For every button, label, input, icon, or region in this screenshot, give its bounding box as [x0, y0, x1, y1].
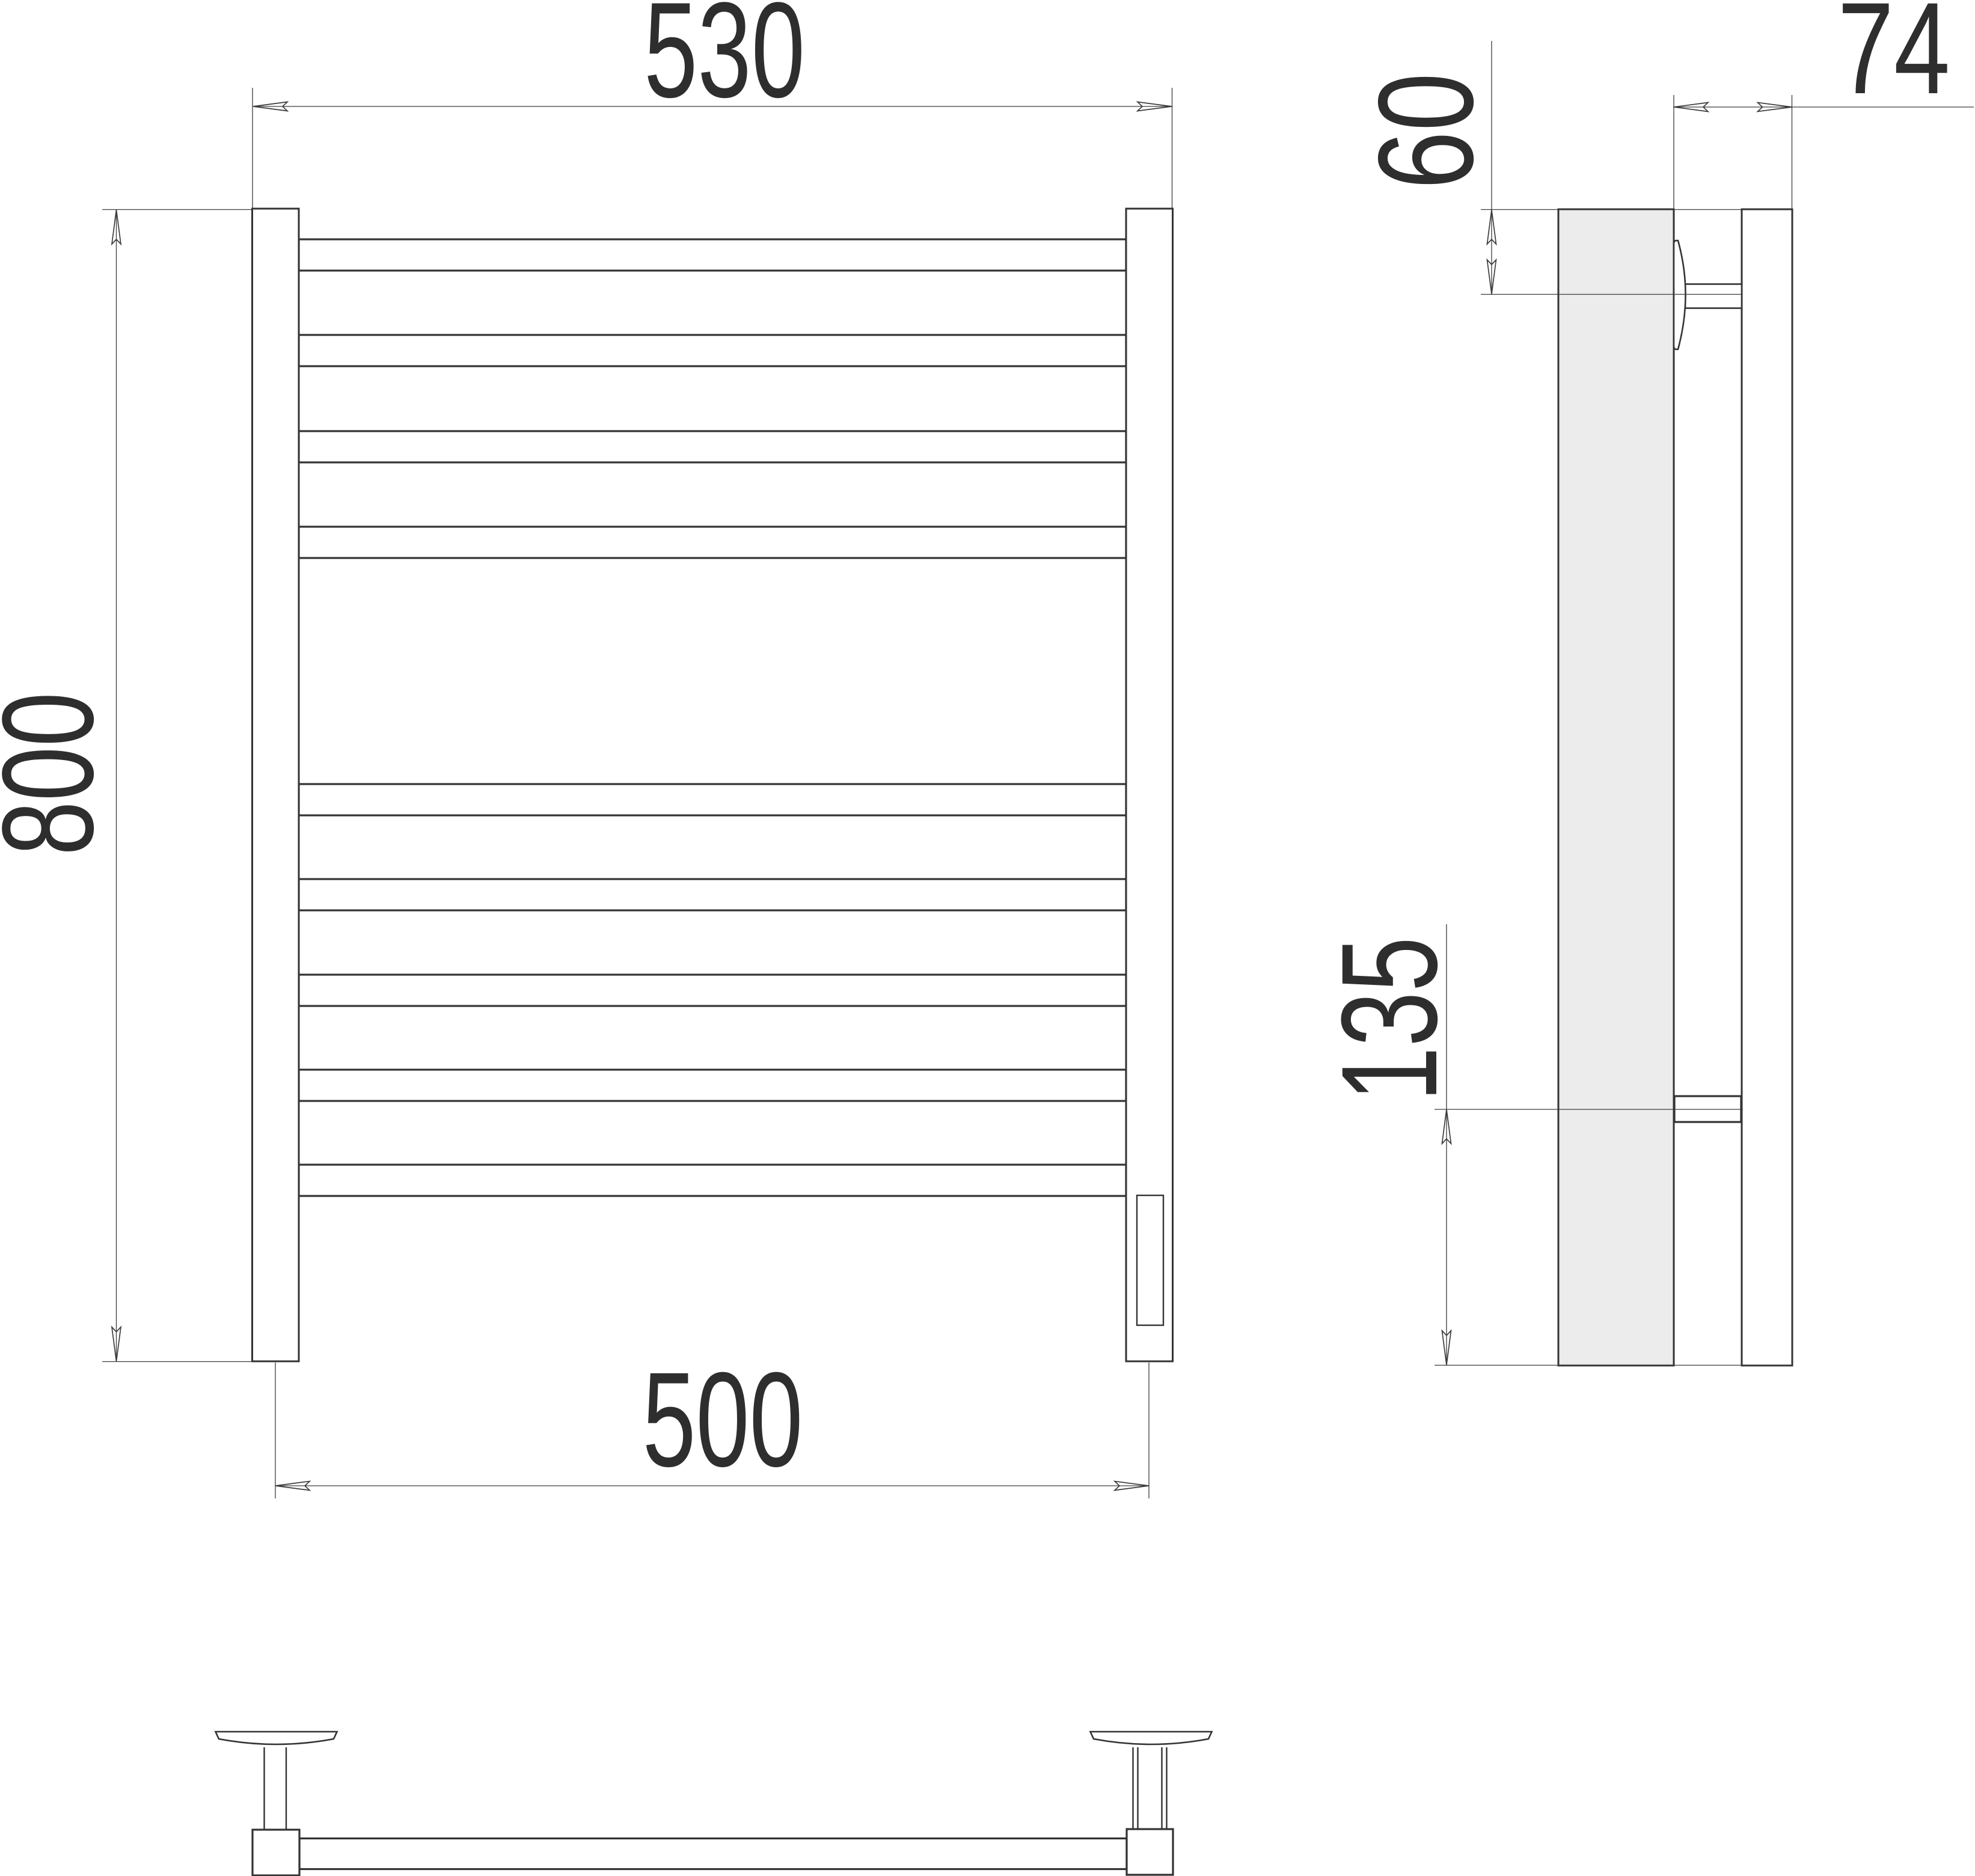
svg-text:135: 135: [1314, 937, 1466, 1102]
svg-text:74: 74: [1838, 0, 1950, 121]
svg-text:500: 500: [643, 1344, 803, 1495]
svg-text:800: 800: [0, 692, 120, 856]
svg-text:60: 60: [1350, 73, 1501, 189]
svg-text:530: 530: [644, 0, 805, 126]
